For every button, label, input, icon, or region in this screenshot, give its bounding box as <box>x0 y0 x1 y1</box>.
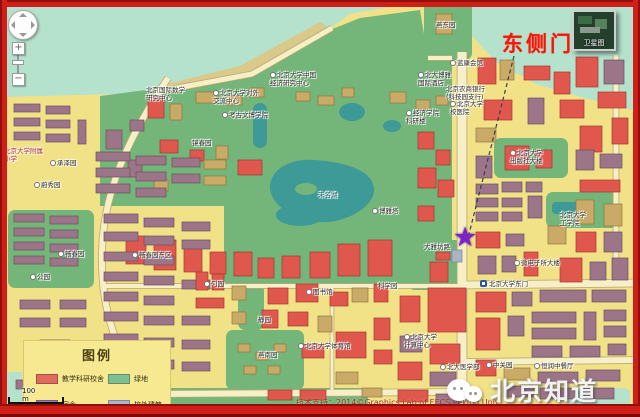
building <box>238 160 262 175</box>
lake-island <box>295 183 317 195</box>
building <box>576 232 596 252</box>
map-label: 北大医学部 <box>440 364 480 372</box>
building <box>204 160 226 169</box>
building <box>604 310 626 321</box>
map-label: 微电子所大楼 <box>514 260 560 268</box>
chat-bubble-icon <box>465 386 482 402</box>
building <box>14 132 40 140</box>
numbered-marker-icon <box>514 260 520 266</box>
map-label: 北京大学 工学院 <box>560 212 586 228</box>
legend-swatch-teaching <box>36 374 58 384</box>
building <box>548 226 566 244</box>
building <box>288 312 308 326</box>
building <box>136 156 166 165</box>
building <box>182 340 210 349</box>
building <box>14 242 44 250</box>
building <box>14 104 40 112</box>
pan-left-icon[interactable] <box>11 21 15 29</box>
map-label: 中关园 <box>486 362 513 370</box>
building <box>172 158 200 167</box>
map-label: 静园 <box>258 317 271 325</box>
building <box>46 120 70 128</box>
building <box>130 120 144 131</box>
map-label: 北京大学 计算中心 <box>404 334 437 350</box>
lake-lobe <box>276 204 324 226</box>
building <box>144 236 174 245</box>
building <box>502 212 522 221</box>
pond <box>383 120 401 132</box>
annotation-east-side-gate: 东侧门 <box>502 28 574 58</box>
building <box>46 106 70 114</box>
building <box>46 134 70 142</box>
building <box>282 256 300 278</box>
building <box>78 120 86 144</box>
building <box>144 276 174 285</box>
building <box>60 300 86 309</box>
building <box>576 57 598 87</box>
legend-label: 教学科研校舍 <box>62 374 104 384</box>
building <box>436 252 450 260</box>
building <box>336 372 358 384</box>
building <box>96 168 130 177</box>
building <box>234 252 252 276</box>
building <box>104 312 138 321</box>
building <box>238 344 250 352</box>
building <box>430 262 448 282</box>
building <box>14 228 44 236</box>
map-label: 博雅塔 <box>372 208 399 216</box>
numbered-marker-icon <box>204 281 210 287</box>
numbered-marker-icon <box>34 182 40 188</box>
building <box>436 150 450 165</box>
building <box>106 130 122 149</box>
zoom-slider-handle[interactable] <box>12 60 24 65</box>
map-label: 公园 <box>30 274 50 282</box>
map-label: 考古文博学院 <box>222 112 268 120</box>
building <box>528 196 542 218</box>
building <box>20 300 50 309</box>
pan-right-icon[interactable] <box>31 21 35 29</box>
numbered-marker-icon <box>486 362 492 368</box>
building <box>428 288 466 332</box>
frame-border <box>0 0 7 417</box>
building <box>604 60 624 84</box>
map-label: 北京大学附属 小学 <box>4 148 43 164</box>
building <box>338 244 360 276</box>
building <box>528 98 544 124</box>
screenshot-frame: 北京大学中国 经济研究中心北京大学对外 交流中心考古文博学院北京国际数学 研究中… <box>0 0 640 417</box>
building <box>478 256 496 274</box>
building <box>608 344 626 355</box>
building <box>184 248 202 272</box>
building <box>104 232 138 241</box>
building <box>362 388 382 397</box>
scale-bar-line <box>8 397 64 404</box>
building <box>416 100 430 109</box>
map-label: 恒润中餐厅 <box>534 363 574 371</box>
building <box>540 290 586 302</box>
building <box>50 216 78 224</box>
building <box>512 292 532 306</box>
building <box>352 288 368 302</box>
frame-border <box>633 0 640 417</box>
building <box>216 146 228 159</box>
numbered-marker-icon <box>30 274 36 280</box>
map-label: 勺园 <box>204 281 224 289</box>
building <box>524 66 550 80</box>
building <box>580 126 602 152</box>
building <box>144 316 174 325</box>
zoom-out-button[interactable]: − <box>12 73 25 86</box>
building <box>310 252 330 278</box>
building <box>204 176 226 185</box>
building <box>182 222 210 231</box>
building <box>258 258 274 278</box>
building <box>400 296 420 322</box>
building <box>144 296 174 305</box>
building <box>612 118 628 144</box>
pan-down-icon[interactable] <box>19 33 27 37</box>
selected-location-star-icon[interactable]: ★ <box>453 224 477 251</box>
legend-item: 教学科研校舍 <box>36 374 104 384</box>
numbered-marker-icon <box>58 251 64 257</box>
building <box>210 252 226 274</box>
building <box>104 292 138 301</box>
building <box>160 140 178 153</box>
building <box>182 362 210 371</box>
building <box>96 184 130 193</box>
map-label: 燕南园 <box>258 352 278 360</box>
building <box>232 312 246 324</box>
building <box>268 288 288 304</box>
map-label: 北京大学 出版社大楼 <box>510 150 543 166</box>
building <box>296 92 310 101</box>
building <box>418 168 436 188</box>
building <box>136 172 166 181</box>
building <box>170 104 182 120</box>
building <box>342 88 354 97</box>
building <box>268 366 280 374</box>
building <box>580 180 620 192</box>
building <box>604 232 622 252</box>
pan-up-icon[interactable] <box>19 13 27 17</box>
building <box>14 256 44 264</box>
map-label: 未名湖 <box>318 192 338 200</box>
map-label: 畅春园东区 <box>132 252 172 260</box>
building <box>96 152 130 161</box>
numbered-marker-icon <box>534 363 540 369</box>
building <box>502 198 522 207</box>
building <box>576 150 594 170</box>
map-label: 蔚秀园 <box>34 182 61 190</box>
building <box>182 316 210 325</box>
building <box>20 318 50 327</box>
building <box>598 92 626 108</box>
building <box>232 286 246 300</box>
map-label: 图书馆 <box>306 289 333 297</box>
map-label: 经济学院 科研楼 <box>406 110 439 126</box>
map-label: 北京国际数学 研究中心 <box>146 87 185 103</box>
thumb-texture <box>580 27 600 33</box>
map-label: 北京大学体育馆 <box>298 343 351 351</box>
pond <box>253 103 267 148</box>
building <box>104 214 138 223</box>
watermark: 北京知道 <box>447 372 598 408</box>
legend-swatch-green <box>108 374 130 384</box>
building <box>554 72 570 94</box>
building <box>476 292 506 312</box>
numbered-marker-icon <box>213 90 219 96</box>
satellite-thumb-label: 卫星图 <box>574 38 614 48</box>
pond <box>339 103 365 121</box>
building <box>390 92 406 103</box>
building <box>14 214 44 222</box>
map-label: 镜春园 <box>192 140 212 148</box>
numbered-marker-icon <box>50 160 56 166</box>
satellite-view-thumbnail[interactable]: 卫星图 <box>572 10 616 51</box>
building <box>196 298 224 308</box>
thumb-texture <box>578 16 592 24</box>
numbered-marker-icon <box>406 110 412 116</box>
map-label: 蓝康会馆 <box>450 60 483 68</box>
numbered-marker-icon <box>510 150 516 156</box>
building <box>438 180 454 197</box>
map-label: 科学园 <box>378 283 398 291</box>
map-label: 承泽园 <box>50 160 77 168</box>
building <box>418 206 434 221</box>
numbered-marker-icon <box>222 112 228 118</box>
building <box>508 316 524 336</box>
numbered-marker-icon <box>298 343 304 349</box>
numbered-marker-icon <box>132 252 138 258</box>
building <box>374 350 392 364</box>
numbered-marker-icon <box>404 334 410 340</box>
map-label: 北京大学中国 经济研究中心 <box>270 72 316 88</box>
building <box>244 366 256 374</box>
legend-item: 绿地 <box>108 374 148 384</box>
building <box>476 198 498 207</box>
numbered-marker-icon <box>372 208 378 214</box>
map-label: 大雅坊路 <box>424 244 450 252</box>
frame-border <box>0 0 640 7</box>
watermark-text: 北京知道 <box>490 372 598 408</box>
building <box>600 154 622 168</box>
building <box>506 234 524 246</box>
building <box>50 258 78 266</box>
building <box>50 230 78 238</box>
numbered-marker-icon <box>450 60 456 66</box>
building <box>476 212 498 221</box>
building <box>136 188 166 197</box>
building <box>560 258 582 282</box>
building <box>418 132 434 149</box>
map-label: 北京大学对外 交流中心 <box>213 90 259 106</box>
building <box>172 174 200 183</box>
building <box>476 232 500 248</box>
numbered-marker-icon <box>418 72 424 78</box>
building <box>476 318 500 350</box>
building <box>570 346 600 357</box>
building <box>560 100 584 118</box>
building <box>526 182 542 192</box>
legend-title: 图例 <box>24 345 170 364</box>
building <box>502 182 522 192</box>
building <box>584 312 596 340</box>
numbered-marker-icon <box>306 289 312 295</box>
building <box>592 290 626 302</box>
building <box>590 262 606 280</box>
building <box>104 272 138 281</box>
building <box>318 96 334 105</box>
building <box>604 326 626 337</box>
numbered-marker-icon <box>440 364 446 370</box>
building <box>532 346 562 357</box>
building <box>532 312 576 323</box>
building <box>144 218 174 227</box>
building <box>604 204 622 226</box>
building <box>60 318 86 327</box>
subway-station-icon <box>480 280 487 287</box>
map-label: 北京大学 校医院 <box>450 101 483 117</box>
building <box>532 328 576 339</box>
zoom-in-button[interactable]: + <box>12 42 25 55</box>
building <box>268 390 292 400</box>
map-label: 北京大学东门 <box>480 280 528 289</box>
building <box>612 258 628 280</box>
building <box>318 316 332 332</box>
building <box>374 318 390 340</box>
frame-border <box>0 404 640 417</box>
building <box>182 240 210 249</box>
building <box>368 240 392 276</box>
map-label: 畅春园 <box>58 251 85 259</box>
map-label: 燕东园 <box>436 22 456 30</box>
numbered-marker-icon <box>270 72 276 78</box>
building <box>398 362 422 380</box>
legend-label: 绿地 <box>134 374 148 384</box>
map-pan-control[interactable] <box>8 10 38 40</box>
building <box>14 118 40 126</box>
numbered-marker-icon <box>450 101 456 107</box>
